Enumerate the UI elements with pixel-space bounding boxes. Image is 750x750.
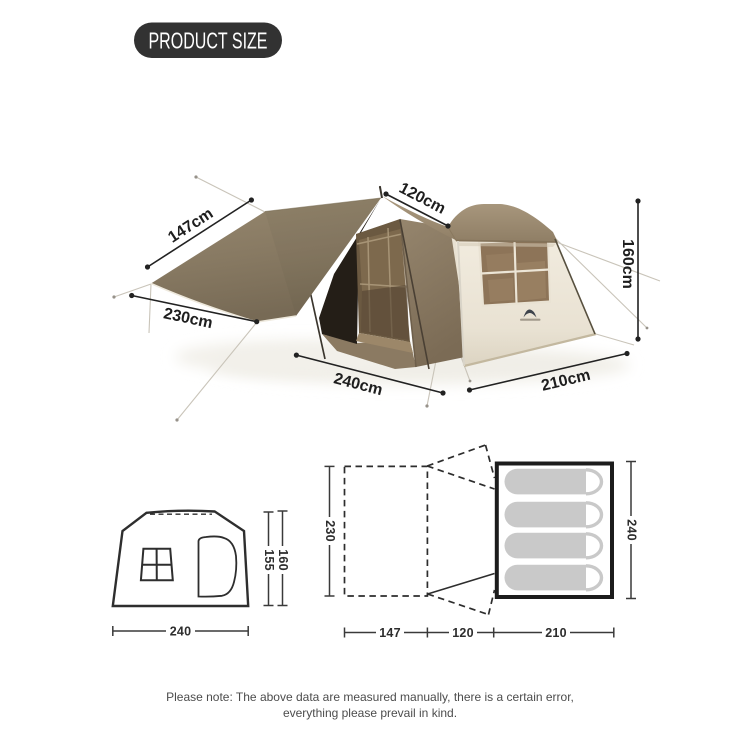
svg-text:155: 155 <box>262 549 276 571</box>
svg-text:160cm: 160cm <box>619 239 636 289</box>
svg-text:160: 160 <box>276 549 290 571</box>
svg-text:PRODUCT SIZE: PRODUCT SIZE <box>149 28 268 54</box>
svg-text:147cm: 147cm <box>165 205 216 246</box>
svg-text:240: 240 <box>170 625 192 639</box>
svg-text:230cm: 230cm <box>162 305 214 332</box>
svg-text:210: 210 <box>545 626 567 640</box>
svg-text:147: 147 <box>379 626 401 640</box>
svg-text:120: 120 <box>452 626 474 640</box>
svg-text:240: 240 <box>625 519 639 541</box>
svg-text:230: 230 <box>323 520 337 542</box>
